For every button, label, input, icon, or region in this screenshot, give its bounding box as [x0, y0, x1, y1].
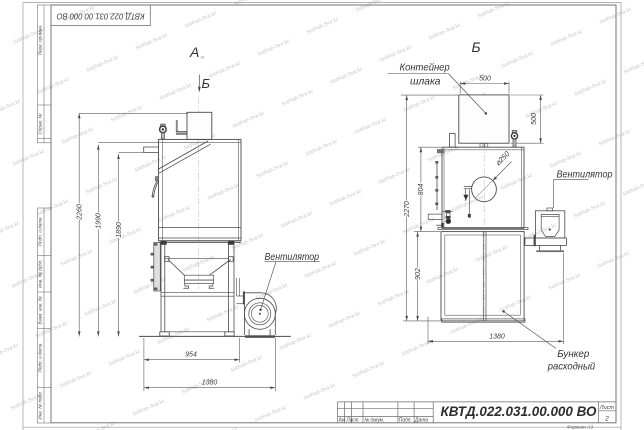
svg-text:1990: 1990 [96, 213, 103, 229]
svg-text:КВТД.022.031.00.000 ВО: КВТД.022.031.00.000 ВО [441, 404, 597, 419]
svg-text:1380: 1380 [489, 334, 505, 341]
svg-text:Вентилятор: Вентилятор [265, 251, 320, 263]
svg-text:Инв. № дубл.: Инв. № дубл. [37, 260, 42, 288]
svg-text:ш: ш [201, 55, 205, 60]
svg-text:Вентилятор: Вентилятор [557, 169, 613, 181]
svg-text:Бункер: Бункер [557, 348, 589, 360]
svg-text:500: 500 [479, 76, 491, 83]
svg-text:Лист: Лист [599, 405, 615, 411]
svg-text:КВТД.022.031.00.000 ВО: КВТД.022.031.00.000 ВО [56, 11, 144, 21]
svg-text:2: 2 [604, 415, 609, 422]
svg-text:Подп. и дата: Подп. и дата [37, 217, 42, 246]
svg-text:Перв. примен.: Перв. примен. [37, 25, 42, 56]
svg-text:1890: 1890 [116, 222, 123, 238]
svg-text:1380: 1380 [202, 380, 218, 387]
svg-text:Справ. №: Справ. № [37, 114, 42, 135]
svg-text:Лист: Лист [346, 418, 360, 424]
svg-text:Б: Б [472, 39, 481, 55]
svg-text:А: А [189, 44, 199, 60]
svg-text:954: 954 [185, 352, 197, 359]
svg-text:Подп.: Подп. [399, 418, 412, 424]
svg-text:Изм.: Изм. [339, 418, 346, 424]
svg-text:Контейнер: Контейнер [400, 62, 450, 74]
svg-text:902: 902 [415, 268, 422, 280]
svg-text:2260: 2260 [77, 204, 84, 221]
svg-text:Взам. инв. №: Взам. инв. № [37, 296, 42, 324]
svg-text:Дата: Дата [414, 418, 428, 424]
svg-text:Инв. № подл.: Инв. № подл. [37, 391, 42, 420]
svg-text:Б: Б [202, 76, 211, 91]
svg-text:шлака: шлака [410, 75, 441, 87]
svg-text:№ докум.: № докум. [365, 418, 385, 424]
svg-text:2270: 2270 [404, 201, 411, 218]
svg-text:расходный: расходный [547, 360, 596, 372]
svg-text:Подп. и дата: Подп. и дата [37, 343, 42, 372]
svg-text:804: 804 [418, 184, 425, 196]
svg-text:500: 500 [531, 113, 538, 125]
svg-text:Формат А3: Формат А3 [567, 424, 594, 430]
